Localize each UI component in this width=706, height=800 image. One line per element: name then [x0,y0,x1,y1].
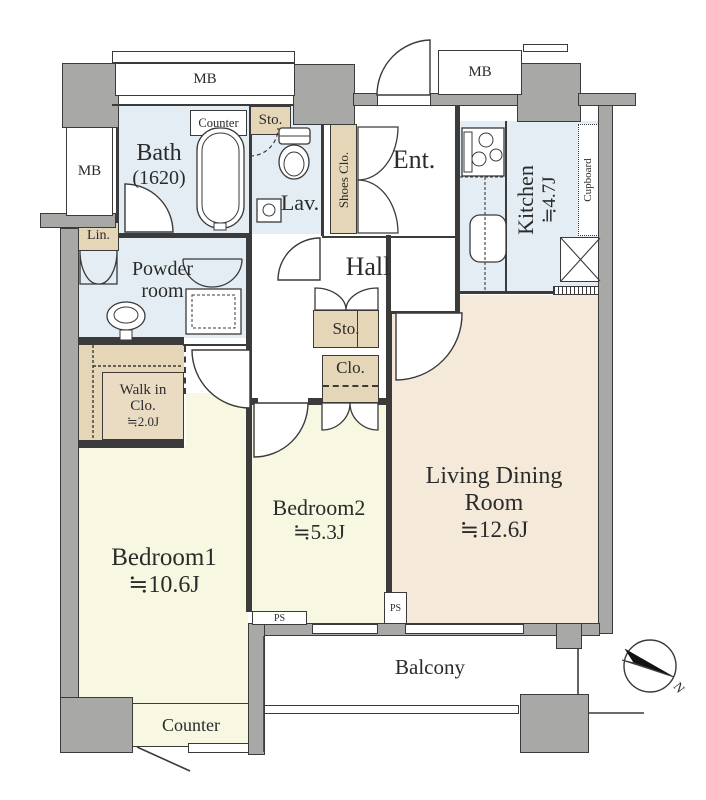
bathtub-step [214,223,226,230]
storage-hall-door-left [315,288,346,310]
compass: N [622,640,688,696]
floor-plan: MB MB MB Lin. Sto. Counter Sto. Clo. W [0,0,706,800]
lavatory-label: Lav. [274,190,326,216]
bedroom1-door-swing [192,350,250,408]
living-dining-door-swing [396,313,462,380]
bedroom1-counter-label: Counter [136,712,246,738]
powder-line1: Powder [132,258,193,280]
front-door-swing [377,40,430,95]
pipe-space-2-label: PS [390,603,401,614]
powder-line2: room [141,280,183,302]
closet-bedroom2-door-right [350,403,378,430]
cupboard-text: Cupboard [582,158,594,201]
closet-bedroom2-door-left [322,403,350,430]
stove-burner-3 [472,152,486,166]
stove-grill [464,132,472,172]
powder-room-label: Powder room [95,256,230,304]
lav-door-swing [278,238,320,280]
powder-basin-inner [114,307,138,323]
kitchen-name: Kitchen [514,165,539,235]
shoes-closet-text: Shoes Clo. [337,152,352,208]
pipe-space-2: PS [384,592,407,624]
balcony-label: Balcony [350,655,510,681]
storage-bath-door-dashed [250,128,278,156]
lavatory-name: Lav. [281,191,319,216]
bedroom1-service-door-flap [137,747,190,771]
stove-burner-1 [479,133,493,147]
bath-name: Bath [136,140,181,167]
bathtub-inner [202,133,239,223]
kitchen-label: Kitchen ≒4.7J [489,150,585,250]
storage-hall-door-right [346,288,378,310]
window-living-dining [405,624,524,634]
living-dining-line1: Living Dining [426,463,563,490]
entrance-label: Ent. [375,145,453,175]
hall-label: Hall [330,252,406,282]
living-dining-label: Living Dining Room ≒12.6J [394,455,594,550]
living-dining-line2: Room [465,490,524,517]
hall-name: Hall [346,252,391,281]
powder-basin-stand [120,330,132,340]
window-bedroom1 [188,743,249,753]
balcony-railing [264,705,519,714]
bedroom2-size: ≒5.3J [293,521,345,545]
pipe-space-1: PS [252,611,307,625]
compass-north-label: N [670,679,688,696]
pipe-space-1-label: PS [274,613,285,624]
bedroom1-name: Bedroom1 [111,544,217,572]
bedroom1-label: Bedroom1 ≒10.6J [78,540,250,602]
bedroom1-counter-text: Counter [162,715,220,735]
cupboard-label: Cupboard [580,140,596,220]
shoes-closet-door-bottom [358,180,398,233]
bedroom2-label: Bedroom2 ≒5.3J [252,492,386,548]
bath-label: Bath (1620) [120,136,198,194]
bedroom1-size: ≒10.6J [128,572,199,599]
balcony-name: Balcony [395,656,465,680]
entrance-name: Ent. [393,145,436,174]
kitchen-size: ≒4.7J [539,176,560,223]
shoes-closet-label: Shoes Clo. [336,130,352,230]
living-dining-size: ≒12.6J [460,517,528,543]
bedroom2-door-swing [254,403,308,457]
toilet-bowl-inner [284,152,304,176]
bath-size: (1620) [132,167,185,189]
window-bedroom2 [312,624,378,634]
bedroom2-name: Bedroom2 [273,496,366,521]
